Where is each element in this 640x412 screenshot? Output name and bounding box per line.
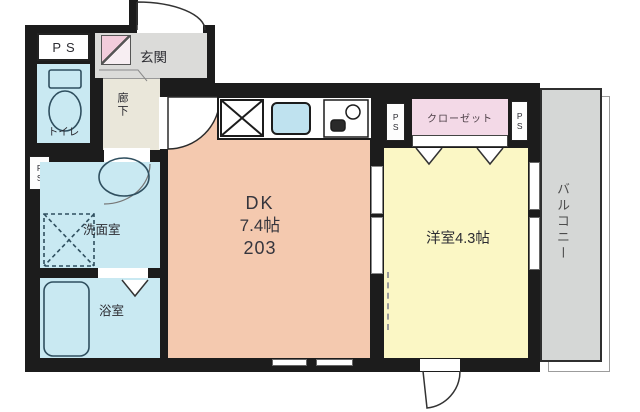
washroom-door-arc-icon [104,164,150,204]
kitchen-sink-icon [272,103,310,134]
entry-door-arc-icon [137,2,205,30]
entrance-label: 玄関 [140,46,167,66]
stove-icon [324,100,368,137]
balcony-label: バルコニー [553,182,572,262]
entrance-step-line [99,70,147,81]
hallway-dk-door-arc-icon [168,97,220,149]
floorplan-canvas: PS PS クローゼット PS PS [0,0,640,412]
refrigerator-space-icon [221,100,263,136]
toilet-icon [49,70,81,131]
dk-label-block: DK 7.4帖 203 [185,192,335,261]
western-door-arc-icon [423,371,460,408]
dk-unit-number-label: 203 [185,237,335,260]
closet-folding-door-left-icon [416,148,442,164]
closet-folding-door-right-icon [477,148,503,164]
bathroom-folding-door-icon [122,280,148,296]
bathroom-label: 浴室 [99,300,124,319]
washroom-label: 洗面室 [83,219,121,238]
western-room-label: 洋室4.3帖 [388,227,528,248]
bathtub-icon [44,282,89,356]
hallway-label: 廊下 [114,92,130,118]
dk-name-label: DK [185,192,335,215]
dk-size-label: 7.4帖 [185,215,335,237]
sink-icon [99,158,149,196]
toilet-label: トイレ [37,124,90,139]
